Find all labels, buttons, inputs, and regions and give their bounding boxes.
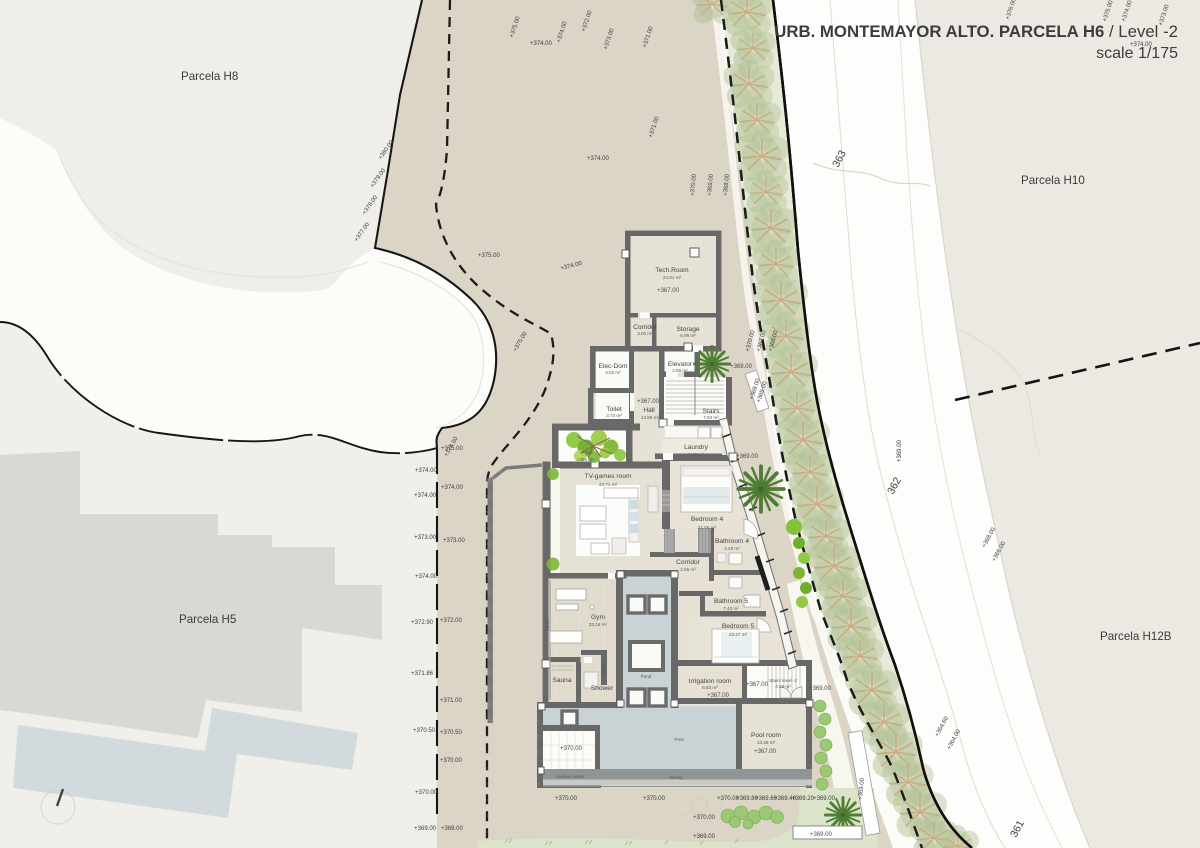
svg-text:Bedroom 5: Bedroom 5 [722, 623, 755, 630]
svg-text:+369.00: +369.00 [414, 826, 437, 832]
svg-text:+367.00: +367.00 [707, 693, 730, 699]
svg-text:+373.00: +373.00 [443, 538, 466, 544]
svg-text:+370.00: +370.00 [555, 796, 578, 802]
svg-text:+374.00: +374.00 [530, 41, 553, 47]
svg-text:+370.00: +370.00 [643, 796, 666, 802]
svg-text:3.00 m²: 3.00 m² [637, 331, 653, 336]
svg-text:+372.90: +372.90 [411, 620, 434, 626]
svg-text:13.39 m²: 13.39 m² [757, 740, 776, 745]
svg-text:+369.00: +369.00 [693, 834, 716, 840]
svg-text:Infinity: Infinity [669, 775, 683, 780]
svg-text:+367.00: +367.00 [657, 288, 680, 294]
svg-text:+374.00: +374.00 [587, 156, 610, 162]
svg-text:Stairs level -2: Stairs level -2 [769, 678, 797, 683]
svg-text:4.09 m²: 4.09 m² [775, 684, 791, 689]
svg-text:Stairs: Stairs [703, 408, 721, 415]
svg-text:+374.00: +374.00 [415, 574, 438, 580]
svg-text:+374.00: +374.00 [414, 493, 437, 499]
svg-text:+370.00: +370.00 [693, 815, 716, 821]
svg-text:Pool room: Pool room [751, 732, 782, 739]
svg-text:Hall: Hall [643, 407, 655, 414]
svg-text:6.99 m²: 6.99 m² [680, 333, 696, 338]
svg-text:3.74 m²: 3.74 m² [606, 413, 622, 418]
svg-text:+369.00: +369.00 [813, 796, 836, 802]
svg-text:Toilet: Toilet [606, 406, 622, 413]
svg-text:+374.00: +374.00 [441, 485, 464, 491]
svg-text:+369.00: +369.00 [897, 439, 903, 462]
svg-text:Mirror: Mirror [545, 619, 550, 631]
svg-text:Laundry: Laundry [684, 444, 709, 451]
svg-text:+370.00: +370.00 [415, 790, 438, 796]
svg-text:Shower: Shower [591, 685, 614, 692]
svg-text:Gym: Gym [591, 614, 605, 621]
svg-text:13.68 m²: 13.68 m² [641, 415, 660, 420]
svg-text:+367.00: +367.00 [746, 682, 769, 688]
svg-text:+369.00: +369.00 [577, 457, 594, 462]
svg-text:23.47 m²: 23.47 m² [729, 632, 748, 637]
svg-text:Irrigation room: Irrigation room [689, 678, 732, 685]
svg-text:Elevator: Elevator [668, 361, 693, 368]
svg-text:Parcela H5: Parcela H5 [179, 613, 236, 626]
svg-text:+370.50: +370.50 [413, 728, 436, 734]
svg-text:+373.00: +373.00 [414, 535, 437, 541]
svg-text:+374.00: +374.00 [1130, 42, 1153, 48]
svg-text:7.93 m²: 7.93 m² [703, 415, 719, 420]
svg-text:2.96 m²: 2.96 m² [680, 567, 696, 572]
svg-text:+369.20: +369.20 [792, 796, 815, 802]
svg-text:Corridor: Corridor [633, 324, 658, 331]
svg-text:Tech.Room: Tech.Room [655, 267, 689, 274]
svg-text:24.81 m²: 24.81 m² [663, 275, 682, 280]
svg-text:2.56 m²: 2.56 m² [672, 368, 688, 373]
svg-text:URB. MONTEMAYOR ALTO. PARCELA: URB. MONTEMAYOR ALTO. PARCELA H6 / Level… [774, 22, 1178, 41]
svg-text:+369.00: +369.00 [730, 364, 753, 370]
svg-text:Parcela H10: Parcela H10 [1021, 174, 1085, 187]
svg-text:+375.00: +375.00 [478, 253, 501, 259]
svg-text:Bathroom 5: Bathroom 5 [714, 598, 748, 605]
svg-text:Bathroom 4: Bathroom 4 [715, 538, 749, 545]
svg-text:Parcela H12B: Parcela H12B [1100, 630, 1172, 643]
svg-text:Parcela H8: Parcela H8 [181, 70, 238, 83]
svg-text:+372.00: +372.00 [440, 618, 463, 624]
svg-text:+371.00: +371.00 [440, 698, 463, 704]
svg-text:+369.00: +369.00 [810, 832, 833, 838]
svg-text:+371.86: +371.86 [411, 671, 434, 677]
svg-text:4.02 m²: 4.02 m² [605, 370, 621, 375]
svg-text:Storage: Storage [676, 326, 699, 333]
svg-text:7.43 m²: 7.43 m² [723, 606, 739, 611]
svg-text:Sunken seats: Sunken seats [556, 774, 585, 779]
svg-text:TV-games room: TV-games room [585, 473, 632, 480]
svg-text:33.18 m²: 33.18 m² [589, 622, 608, 627]
svg-text:+369.00: +369.00 [441, 826, 464, 832]
svg-text:Towels: Towels [601, 662, 606, 677]
svg-text:+369.00: +369.00 [809, 686, 832, 692]
svg-text:Elec-Dom: Elec-Dom [599, 363, 628, 370]
svg-text:+370.00: +370.00 [440, 758, 463, 764]
svg-text:Sauna: Sauna [552, 677, 571, 684]
svg-text:Pool: Pool [674, 737, 683, 742]
svg-text:+370.00: +370.00 [560, 746, 583, 752]
svg-text:Corridor: Corridor [676, 559, 701, 566]
svg-text:Patio: Patio [582, 450, 593, 455]
svg-text:+369.00: +369.00 [736, 454, 759, 460]
svg-text:Pond: Pond [641, 674, 652, 679]
svg-text:+374.00: +374.00 [415, 468, 438, 474]
svg-text:9.40 m²: 9.40 m² [688, 452, 704, 457]
svg-text:+370.50: +370.50 [440, 730, 463, 736]
svg-text:+367.00: +367.00 [637, 399, 660, 405]
svg-text:6.83 m²: 6.83 m² [702, 685, 718, 690]
svg-text:Bedroom 4: Bedroom 4 [691, 516, 724, 523]
svg-text:+367.00: +367.00 [754, 749, 777, 755]
svg-text:21.55 m²: 21.55 m² [698, 525, 717, 530]
svg-text:43.71 m²: 43.71 m² [599, 482, 618, 487]
svg-text:4.28 m²: 4.28 m² [724, 546, 740, 551]
